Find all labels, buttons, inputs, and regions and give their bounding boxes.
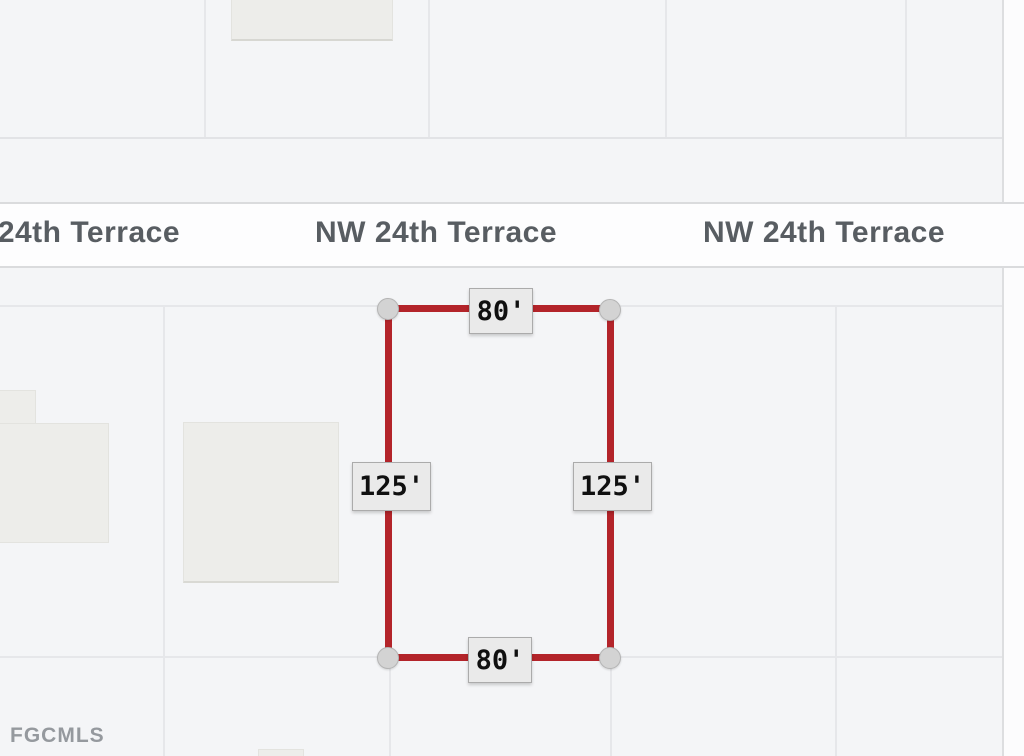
street-label: NW 24th Terrace	[0, 202, 180, 264]
building-footprint	[258, 749, 304, 756]
dimension-label-left: 125'	[352, 462, 431, 511]
dimension-value: 80'	[477, 296, 526, 327]
dimension-value: 80'	[476, 645, 525, 676]
parcel-line	[0, 137, 1024, 139]
dimension-value: 125'	[359, 471, 424, 502]
lot-corner-handle-sw[interactable]	[377, 647, 399, 669]
parcel-line	[905, 0, 907, 137]
building-footprint	[231, 0, 393, 41]
parcel-line	[665, 0, 667, 137]
parcel-line	[163, 306, 165, 756]
parcel-line	[204, 0, 206, 137]
building-footprint	[183, 422, 339, 583]
parcel-line	[835, 306, 837, 756]
dimension-label-right: 125'	[573, 462, 652, 511]
cross-street	[1002, 0, 1024, 756]
dimension-label-top: 80'	[469, 288, 533, 334]
mls-watermark: FGCMLS	[10, 724, 105, 748]
parcel-map[interactable]: NW 24th Terrace NW 24th Terrace NW 24th …	[0, 0, 1024, 756]
lot-corner-handle-ne[interactable]	[599, 299, 621, 321]
lot-corner-handle-nw[interactable]	[377, 298, 399, 320]
street-label: NW 24th Terrace	[315, 202, 557, 264]
parcel-line	[428, 0, 430, 137]
lot-corner-handle-se[interactable]	[599, 647, 621, 669]
dimension-label-bottom: 80'	[468, 637, 532, 683]
building-footprint	[0, 423, 109, 543]
street-label: NW 24th Terrace	[703, 202, 945, 264]
dimension-value: 125'	[580, 471, 645, 502]
